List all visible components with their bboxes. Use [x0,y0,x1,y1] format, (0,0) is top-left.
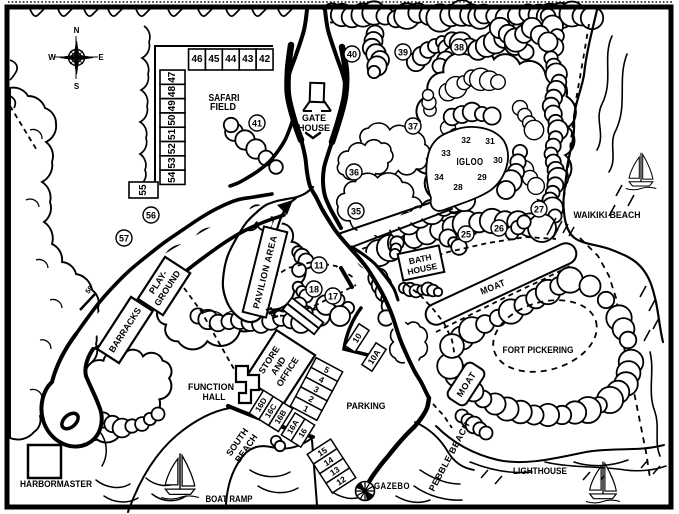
svg-text:WAIKIKI BEACH: WAIKIKI BEACH [574,210,641,220]
svg-text:39: 39 [398,48,408,58]
svg-text:E: E [98,53,104,62]
svg-text:28: 28 [453,182,463,192]
svg-text:HALL: HALL [203,392,226,402]
svg-text:51: 51 [167,128,178,140]
svg-text:50: 50 [167,114,178,126]
svg-text:46: 46 [191,54,203,65]
svg-text:W: W [48,53,56,62]
svg-text:31: 31 [485,136,495,146]
svg-text:42: 42 [259,54,271,65]
svg-text:53: 53 [167,157,178,169]
svg-text:FUNCTION: FUNCTION [188,382,234,392]
svg-text:FIELD: FIELD [210,102,236,113]
svg-text:45: 45 [208,54,220,65]
svg-text:41: 41 [252,119,262,129]
svg-text:N: N [74,26,80,35]
svg-text:57: 57 [119,234,129,244]
svg-text:47: 47 [167,71,178,83]
svg-text:26: 26 [494,224,504,234]
svg-text:48: 48 [167,86,178,98]
svg-text:33: 33 [441,148,451,158]
svg-text:FORT PICKERING: FORT PICKERING [503,345,574,356]
svg-text:25: 25 [461,230,471,240]
svg-text:36: 36 [349,168,359,178]
svg-text:HOUSE: HOUSE [298,123,330,134]
svg-text:52: 52 [167,143,178,155]
svg-text:29: 29 [477,172,487,182]
svg-text:IGLOO: IGLOO [457,157,484,168]
svg-text:HARBORMASTER: HARBORMASTER [20,479,92,489]
svg-text:18: 18 [309,285,319,295]
svg-text:32: 32 [461,135,471,145]
svg-text:56: 56 [146,211,156,221]
svg-text:55: 55 [138,184,149,196]
svg-text:S: S [74,82,80,91]
svg-text:54: 54 [167,171,178,183]
svg-text:11: 11 [314,261,324,271]
svg-text:40: 40 [347,50,357,60]
svg-text:34: 34 [434,172,444,182]
svg-text:27: 27 [534,205,544,215]
svg-text:GAZEBO: GAZEBO [374,481,410,491]
svg-text:30: 30 [493,155,503,165]
svg-text:43: 43 [242,54,254,65]
svg-text:37: 37 [408,122,418,132]
svg-text:LIGHTHOUSE: LIGHTHOUSE [513,466,567,477]
svg-text:17: 17 [328,292,338,302]
svg-text:38: 38 [454,43,464,53]
svg-text:35: 35 [351,207,361,217]
svg-text:49: 49 [167,100,178,112]
svg-text:PARKING: PARKING [347,401,386,412]
svg-text:BOAT RAMP: BOAT RAMP [206,494,254,505]
svg-text:44: 44 [225,54,237,65]
